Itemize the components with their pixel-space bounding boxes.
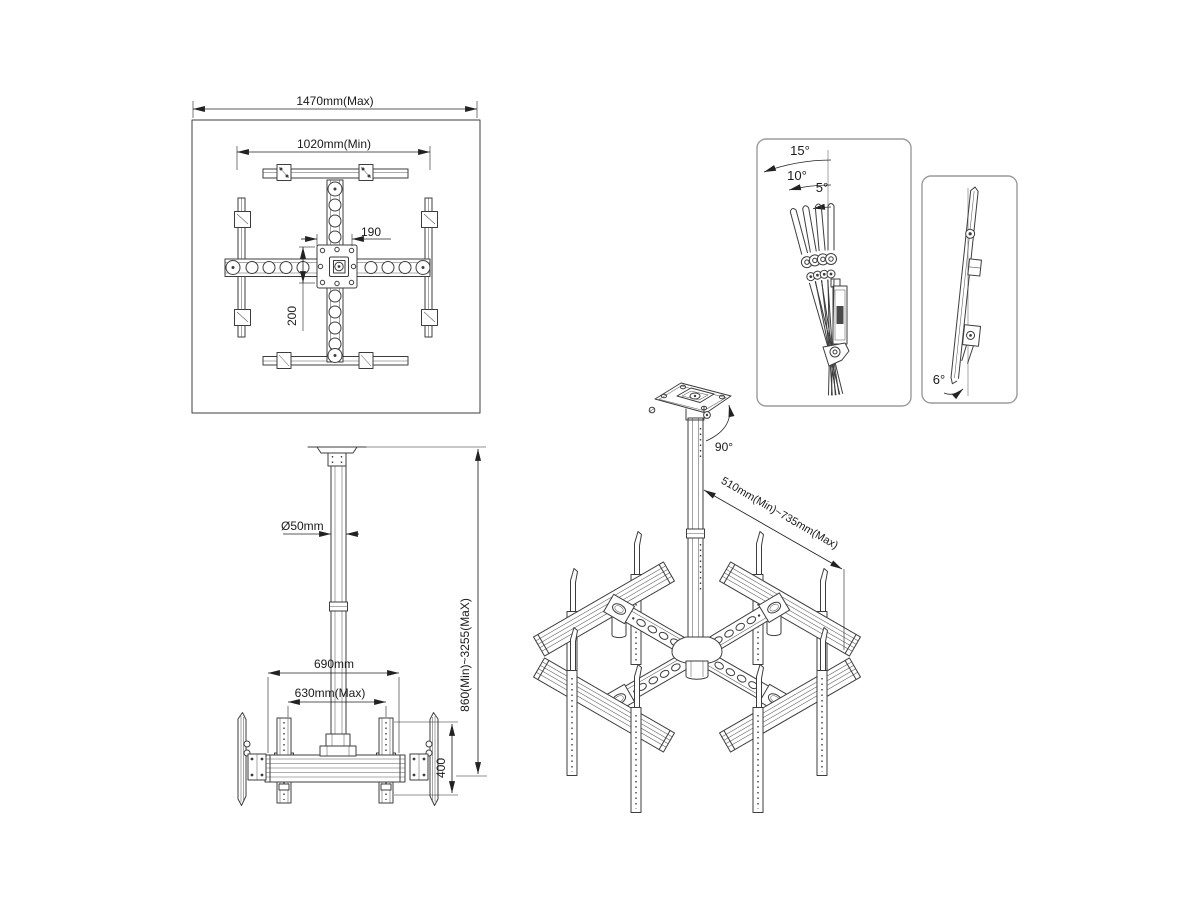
side-angle-panel: 6° — [922, 176, 1017, 403]
angle-15-label: 15° — [790, 143, 810, 158]
dim-200: 200 — [285, 306, 299, 326]
tilt-hook — [823, 343, 849, 366]
front-beam — [265, 755, 405, 782]
ceiling-plate — [308, 447, 366, 466]
technical-drawing-canvas: 1470mm(Max) 1020mm(Min) — [0, 0, 1200, 900]
iso-back-beam-e — [720, 562, 861, 656]
dim-690: 690mm — [314, 657, 354, 671]
dim-1470: 1470mm(Max) — [296, 94, 373, 108]
dim-1020: 1020mm(Min) — [297, 137, 371, 151]
iso-pole — [687, 418, 705, 640]
angle-5-label: 5° — [816, 180, 828, 195]
dim-400: 400 — [434, 758, 448, 778]
dim-190: 190 — [361, 225, 381, 239]
drawing-svg: 1470mm(Max) 1020mm(Min) — [0, 0, 1200, 900]
dim-rotation-90: 90° — [715, 440, 733, 454]
front-view: Ø50mm 860(Min)~3255(MaX) 690mm 630mm(Max… — [238, 447, 487, 806]
angle-10-label: 10° — [787, 168, 807, 183]
top-view: 1470mm(Max) 1020mm(Min) — [192, 94, 480, 413]
iso-ceiling-plate — [649, 383, 731, 420]
dim-height-range: 860(Min)~3255(MaX) — [458, 598, 472, 712]
iso-back-beam-n — [534, 562, 675, 656]
pole-beam-clamp — [320, 734, 356, 756]
left-side-bracket — [238, 713, 266, 806]
top-rail — [263, 165, 408, 181]
iso-view: 90° 510mm(Min)~735mm(Max) — [534, 383, 861, 813]
dim-pole-diameter: Ø50mm — [281, 519, 324, 533]
angle-6-label: 6° — [933, 372, 945, 387]
tilt-angle-panel: 15° 10° 5° — [757, 139, 911, 406]
angle-6-arc — [944, 389, 963, 394]
dim-column-range: 510mm(Min)~735mm(Max) — [719, 475, 840, 552]
dim-630: 630mm(Max) — [295, 686, 366, 700]
side-bracket — [950, 187, 995, 386]
center-plate — [317, 245, 357, 288]
